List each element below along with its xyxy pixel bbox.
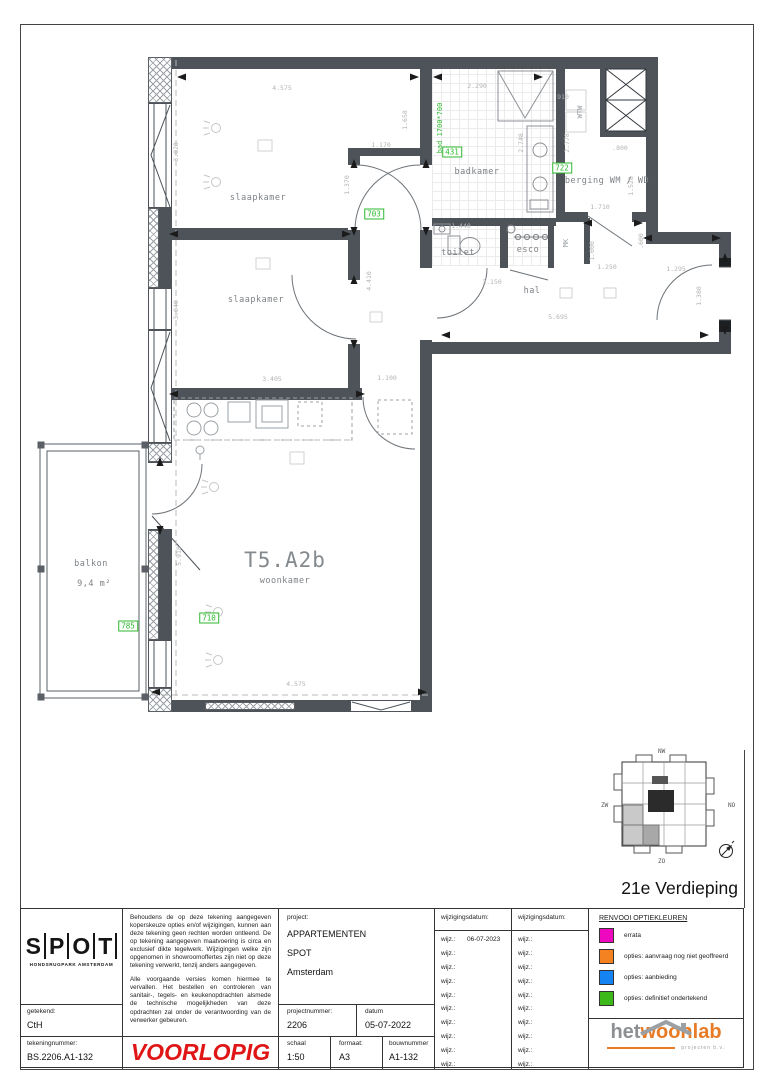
keyplan-label-nw: NW: [658, 748, 666, 755]
dimension-label: 1.000: [588, 241, 596, 261]
dimension-label: 1.658: [401, 110, 409, 130]
dimension-label: 910: [557, 93, 569, 101]
wijz-label: wijz.:: [518, 936, 544, 943]
spot-logo: S P O T: [21, 933, 122, 959]
legend-color-swatch: [599, 928, 614, 943]
getekend-cell: getekend: CtH: [21, 1005, 123, 1037]
getekend-label: getekend:: [27, 1008, 122, 1015]
formaat-value: A3: [339, 1052, 382, 1062]
keyplan-label-zw: ZW: [601, 802, 609, 809]
dimension-label: 1.170: [371, 141, 391, 149]
wijz-row: wijz.:: [441, 1002, 511, 1016]
wijz-row: wijz.:: [518, 988, 588, 1002]
stamp-cell: VOORLOPIG: [123, 1037, 279, 1069]
option-number-label: 722: [552, 163, 572, 174]
legend-item: opties: definitief ondertekend: [599, 991, 743, 1006]
logo-letter: S: [26, 933, 41, 959]
room-label: berging WM / WD: [565, 176, 649, 186]
legend-item-label: opties: definitief ondertekend: [624, 995, 707, 1002]
legend-title: RENVOOI OPTIEKLEUREN: [599, 915, 743, 922]
legend-color-swatch: [599, 991, 614, 1006]
legend-item: opties: aanbieding: [599, 970, 743, 985]
stamp-column-divider: [744, 750, 745, 908]
legend-item-label: opties: aanbieding: [624, 974, 677, 981]
dimension-label: 1.295: [666, 265, 686, 273]
title-block: S P O T HONDSRUGPARK AMSTERDAM getekend:…: [20, 908, 744, 1068]
legend-cell: RENVOOI OPTIEKLEUREN errataopties: aanvr…: [589, 909, 743, 1019]
legend-color-swatch: [599, 949, 614, 964]
formaat-cell: formaat: A3: [331, 1037, 383, 1069]
woonlab-roof-icon: [589, 1019, 743, 1035]
bouwnummer-value: A1-132: [389, 1052, 434, 1062]
wijz-label: wijz.:: [441, 936, 467, 943]
wijz-label: wijz.:: [441, 978, 467, 985]
wijz-row: wijz.:: [518, 961, 588, 975]
legend-item-label: errata: [624, 932, 641, 939]
tekeningnummer-cell: tekeningnummer: BS.2206.A1-132: [21, 1037, 123, 1069]
vertical-text-label: WTW: [576, 106, 584, 119]
room-label: badkamer: [455, 167, 500, 177]
disclaimer-paragraph: Behoudens de op deze tekening aangegeven…: [130, 914, 271, 970]
option-number-label: 431: [442, 147, 462, 158]
formaat-label: formaat:: [339, 1040, 382, 1047]
dimension-label: 1.370: [343, 175, 351, 195]
option-number-label: 710: [199, 613, 219, 624]
datum-label: datum: [365, 1008, 434, 1015]
wijz-value: 06-07-2023: [467, 936, 500, 943]
projectnummer-value: 2206: [287, 1020, 356, 1030]
project-sub: SPOT: [287, 948, 434, 958]
wijzigingsdatum-label: wijzigingsdatum:: [518, 914, 566, 921]
wijzigingsdatum-label: wijzigingsdatum:: [441, 914, 489, 921]
brand-subtitle: projecten b.v.: [681, 1045, 725, 1051]
wijz-row: wijz.:: [441, 947, 511, 961]
wijz-row: wijz.:: [518, 1016, 588, 1030]
keyplan-label-zo: ZO: [658, 858, 666, 865]
north-arrow-icon: [720, 841, 735, 858]
wijz-row: wijz.:: [518, 974, 588, 988]
project-cell: project: APPARTEMENTEN SPOT Amsterdam: [279, 909, 435, 1005]
option-number-label: 703: [364, 209, 384, 220]
wijz-label: wijz.:: [441, 964, 467, 971]
wijz-row: wijz.:06-07-2023: [441, 933, 511, 947]
room-label: balkon: [74, 559, 108, 569]
unit-room-label: woonkamer: [260, 576, 311, 586]
spot-logo-subtitle: HONDSRUGPARK AMSTERDAM: [21, 962, 122, 967]
dimension-label: 3.405: [262, 375, 282, 383]
bouwnummer-cell: bouwnummer A1-132: [383, 1037, 435, 1069]
wijz-col-2: wijz.:wijz.:wijz.:wijz.:wijz.:wijz.:wijz…: [512, 931, 589, 1069]
wijz-row: wijz.:: [518, 1002, 588, 1016]
dimension-label: 3.040: [172, 300, 180, 320]
wijz-row: wijz.:: [441, 974, 511, 988]
schaal-label: schaal: [287, 1040, 330, 1047]
project-city: Amsterdam: [287, 967, 434, 977]
brand-underline: projecten b.v.: [607, 1045, 725, 1051]
projectnummer-cell: projectnummer: 2206: [279, 1005, 357, 1037]
datum-cell: datum 05-07-2022: [357, 1005, 435, 1037]
getekend-value: CtH: [27, 1020, 122, 1030]
voorlopig-stamp: VOORLOPIG: [123, 1037, 278, 1067]
legend-color-swatch: [599, 970, 614, 985]
room-label: 9,4 m²: [77, 579, 111, 589]
logo-cell: S P O T HONDSRUGPARK AMSTERDAM: [21, 909, 123, 1005]
wijz-row: wijz.:: [441, 961, 511, 975]
projectnummer-label: projectnummer:: [287, 1008, 356, 1015]
dimension-label: 1.100: [377, 374, 397, 382]
tekeningnummer-value: BS.2206.A1-132: [27, 1052, 122, 1062]
logo-letter: T: [98, 933, 112, 959]
wijz-label: wijz.:: [441, 1061, 467, 1068]
datum-value: 05-07-2022: [365, 1020, 434, 1030]
wijz-row: wijz.:: [441, 1030, 511, 1044]
room-label: hal: [524, 286, 541, 296]
dimension-label: 1.380: [695, 286, 703, 306]
logo-letter: O: [72, 933, 90, 959]
wijz-label: wijz.:: [518, 1005, 544, 1012]
wijz-row: wijz.:: [518, 1043, 588, 1057]
wijz-label: wijz.:: [518, 1019, 544, 1026]
wijz-label: wijz.:: [518, 1033, 544, 1040]
room-label: toilet: [441, 248, 475, 258]
wijz-label: wijz.:: [518, 992, 544, 999]
wijz-label: wijz.:: [441, 1033, 467, 1040]
brand-cell: hetwoonlab projecten b.v.: [589, 1019, 743, 1069]
drawing-sheet: 4.5753.0281.1701.3701.6582.2902.7489102.…: [0, 0, 772, 1092]
wijz-row: wijz.:: [518, 933, 588, 947]
floor-title: 21e Verdieping: [621, 878, 738, 899]
dimension-label: 2.748: [517, 133, 525, 153]
dimension-label: 4.575: [272, 84, 292, 92]
room-label: esco: [517, 245, 539, 255]
wijz-label: wijz.:: [441, 1005, 467, 1012]
wijz-label: wijz.:: [518, 1061, 544, 1068]
wijz-label: wijz.:: [518, 1047, 544, 1054]
wijz-label: wijz.:: [441, 1019, 467, 1026]
legend-item-label: opties: aanvraag nog niet geoffreerd: [624, 953, 728, 960]
project-name: APPARTEMENTEN: [287, 929, 434, 939]
disclaimer-paragraph: Alle voorgaande versies komen hiermee te…: [130, 976, 271, 1024]
room-label: slaapkamer: [228, 295, 284, 305]
wijz-row: wijz.:: [518, 947, 588, 961]
dimension-label: 1.440: [451, 222, 471, 230]
dimension-label: .600: [637, 233, 645, 249]
wijz-label: wijz.:: [518, 950, 544, 957]
dimension-label: 5.695: [548, 313, 568, 321]
unit-code-label: T5.A2b: [244, 548, 326, 572]
dimension-label: 1.710: [590, 203, 610, 211]
dimension-label: 3.028: [172, 142, 180, 162]
keyplan-label-no: NO: [728, 802, 736, 809]
wijz-label: wijz.:: [518, 964, 544, 971]
room-label: slaapkamer: [230, 193, 286, 203]
wijz-header-2: wijzigingsdatum:: [512, 909, 589, 931]
wijz-row: wijz.:: [441, 1043, 511, 1057]
wijz-row: wijz.:: [441, 1016, 511, 1030]
logo-letter: P: [49, 933, 64, 959]
dimension-label: 5.918: [175, 546, 183, 566]
wijz-col-1: wijz.:06-07-2023wijz.:wijz.:wijz.:wijz.:…: [435, 931, 512, 1069]
legend-items: errataopties: aanvraag nog niet geoffree…: [589, 928, 743, 1006]
disclaimer-cell: Behoudens de op deze tekening aangegeven…: [123, 909, 279, 1037]
wijz-label: wijz.:: [518, 978, 544, 985]
legend-item: errata: [599, 928, 743, 943]
wijz-row: wijz.:: [518, 1057, 588, 1069]
bouwnummer-label: bouwnummer: [389, 1040, 434, 1047]
wijz-label: wijz.:: [441, 992, 467, 999]
dimension-label: 2.290: [467, 82, 487, 90]
schaal-cell: schaal 1:50: [279, 1037, 331, 1069]
vertical-text-label: MK: [562, 239, 570, 247]
dimension-label: 4.575: [286, 680, 306, 688]
wijz-row: wijz.:: [441, 988, 511, 1002]
dimension-label: 3.150: [482, 278, 502, 286]
legend-item: opties: aanvraag nog niet geoffreerd: [599, 949, 743, 964]
dimension-label: .800: [612, 144, 628, 152]
option-number-label: 785: [118, 621, 138, 632]
wijz-row: wijz.:: [441, 1057, 511, 1069]
key-plan: NW ZW NO ZO: [600, 748, 740, 866]
schaal-value: 1:50: [287, 1052, 330, 1062]
dimension-label: 2.778: [563, 133, 571, 153]
project-label: project:: [287, 914, 434, 921]
wijz-header-1: wijzigingsdatum:: [435, 909, 512, 931]
wijz-row: wijz.:: [518, 1030, 588, 1044]
dimension-label: 4.410: [365, 271, 373, 291]
tekeningnummer-label: tekeningnummer:: [27, 1040, 122, 1047]
wijz-label: wijz.:: [441, 1047, 467, 1054]
dimension-label: 1.250: [597, 263, 617, 271]
wijz-label: wijz.:: [441, 950, 467, 957]
